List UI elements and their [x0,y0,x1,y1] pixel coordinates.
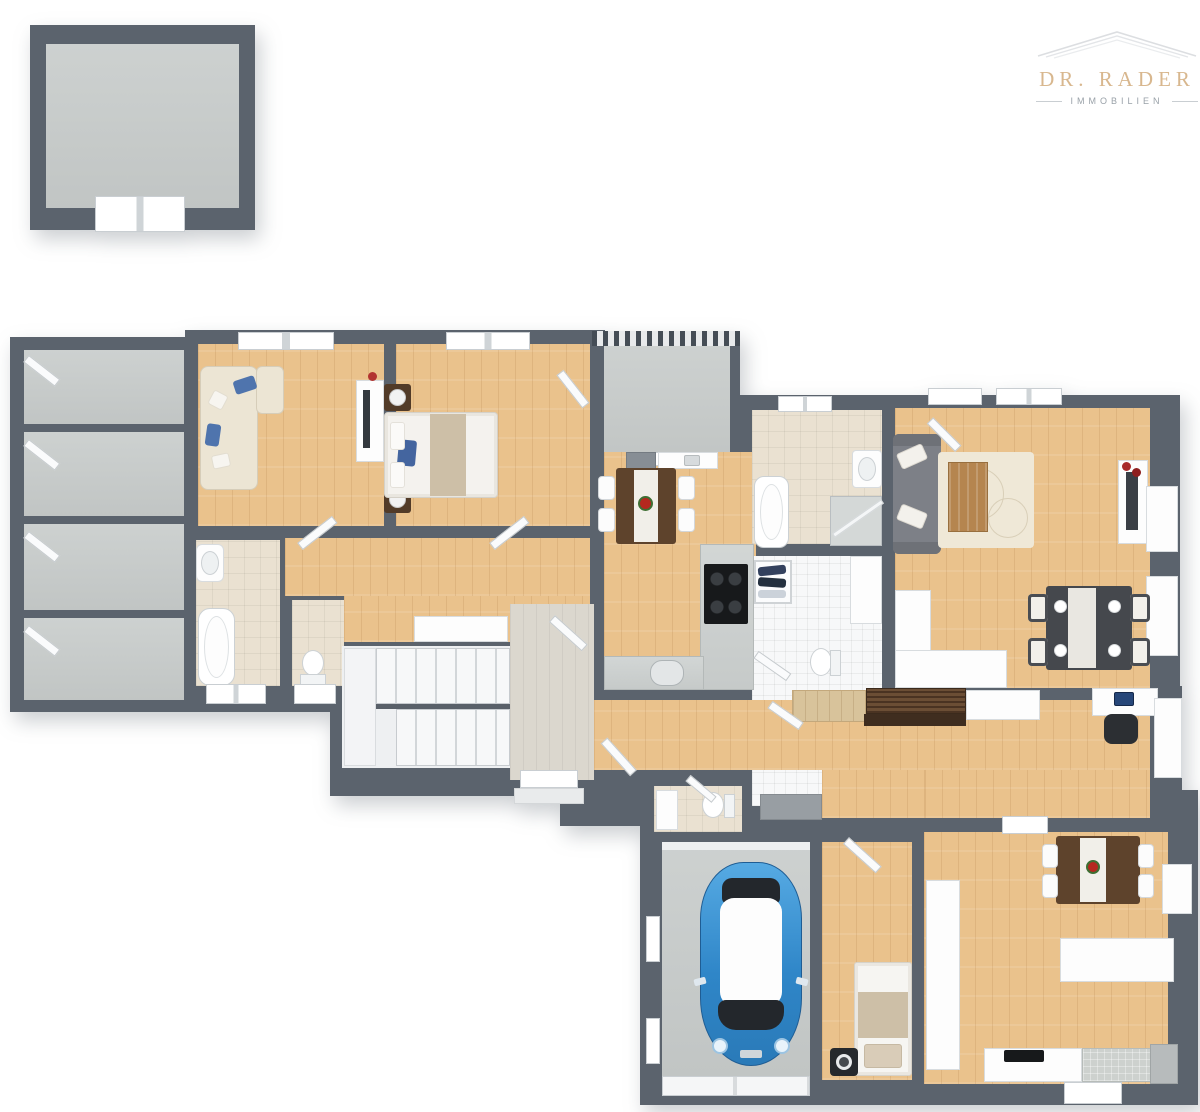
corridor-wall-shelf [1154,698,1182,778]
dining-3-chair-3 [1138,844,1154,868]
corridor-slatted-bench [866,688,966,714]
single-bed-pillow [864,1044,902,1068]
dining-2-chair-1 [1028,594,1048,622]
bedroom-window [446,332,530,350]
front-door [520,770,578,788]
plate-3 [1108,600,1121,613]
car-headlight-left [712,1038,728,1054]
cooktop-2 [1004,1050,1044,1062]
bathroom-1-basin [201,551,219,575]
corner-sofa-arm [256,366,284,414]
kitchenette-counter-horizontal [895,650,1007,688]
bathroom-1-tub-basin [204,616,229,678]
corridor-floor-right [925,770,1150,818]
bathroom-2-basin [858,457,876,481]
dining-3-chair-1 [1042,844,1058,868]
speaker-cone [836,1054,852,1070]
car-license-plate [740,1050,762,1058]
dining-table-1-flowers [638,496,653,511]
balcony-railing [592,331,740,346]
bed-pillow-2 [390,462,405,488]
kitchen-sink-1 [650,660,684,686]
car-headlight-right [774,1038,790,1054]
rug-swirl-2 [988,498,1028,538]
storage-room-4-floor [24,618,184,700]
dining-2-chair-2 [1028,638,1048,666]
bathroom-2-window [778,396,832,412]
garage-wall-face [662,842,810,850]
stair-landing [344,648,376,766]
utility-cabinet [850,556,882,624]
cooktop-1 [704,564,748,624]
bed-blanket [430,414,466,496]
bed-pillow-1 [390,422,405,450]
utility-toilet-tank [830,650,841,676]
fridge [1150,1044,1178,1084]
dining-table-2-runner [1068,588,1096,668]
floor-plan-canvas: DR. RADER IMMOBILIEN [0,0,1200,1112]
clothes-navy [758,577,787,588]
plate-4 [1108,644,1121,657]
clothes-light [758,590,786,598]
corridor-locker [760,794,822,820]
counter-left-wall [926,880,960,1070]
living-dining-window-1 [996,388,1062,405]
main-building [0,0,1200,1112]
garage-window-2 [646,1018,660,1064]
tv-sideboard [356,380,384,462]
storage-room-2-floor [24,432,184,516]
wall-shelf-right-2 [1146,576,1178,656]
dining-1-chair-4 [678,508,695,532]
storage-room-3-floor [24,524,184,610]
plate-1 [1054,600,1067,613]
gray-sofa-arm-bottom [893,542,941,554]
red-decor-2 [1132,468,1141,477]
balcony-floor [604,345,730,461]
wall-shelf-right-1 [1146,486,1178,552]
utility-toilet-bowl [810,648,832,676]
tv-screen [363,390,370,448]
stair-flight-lower [396,709,510,766]
laptop [1114,692,1134,706]
corridor-floor-bedroom-nook [822,770,925,818]
corridor-sideboard-white [966,690,1040,720]
kitchen-tile-splash [1082,1048,1152,1082]
lamp-top [389,389,406,406]
bathroom-1-window [206,684,266,704]
car-windshield [718,1000,784,1030]
red-decor-1 [1122,462,1131,471]
corridor-sideboard-wood [792,690,866,722]
stair-flight-upper [376,648,510,704]
living-dining-window-2 [928,388,982,405]
entry-hall-floor [510,604,594,780]
dining-3-chair-4 [1138,874,1154,898]
wall-shelf-lower-right [1162,864,1192,914]
dining-2-chair-4 [1130,638,1150,666]
dining-1-chair-1 [598,476,615,500]
red-vase [368,372,377,381]
dining-1-chair-2 [598,508,615,532]
dining-3-chair-2 [1042,874,1058,898]
office-chair [1104,714,1138,744]
front-step [514,788,584,804]
hallway-sideboard [414,616,508,642]
kitchen-small-sink [684,455,700,466]
wc-2-shelf [656,790,678,830]
corridor-bench-drawers [864,714,966,726]
kitchen-living-door [1002,816,1048,834]
storage-room-1-floor [24,350,184,424]
wc-1-window [294,684,336,704]
dining-table-3-flowers [1086,860,1100,874]
coffee-table [948,462,988,532]
dining-1-chair-3 [678,476,695,500]
tv-screen-2 [1126,472,1138,530]
single-bed-blanket [858,992,908,1038]
wc-2-toilet-tank [724,794,735,818]
dining-2-chair-3 [1130,594,1150,622]
garage-door [662,1076,810,1096]
island-counter [1060,938,1174,982]
plate-2 [1054,644,1067,657]
living-room-window [238,332,334,350]
bathroom-2-tub-basin [760,484,783,540]
kitchen-living-exterior-door [1064,1082,1122,1104]
wc-1-toilet-bowl [302,650,324,676]
hallway-floor [285,538,590,596]
garage-window-1 [646,916,660,962]
car-roof [720,898,782,1006]
